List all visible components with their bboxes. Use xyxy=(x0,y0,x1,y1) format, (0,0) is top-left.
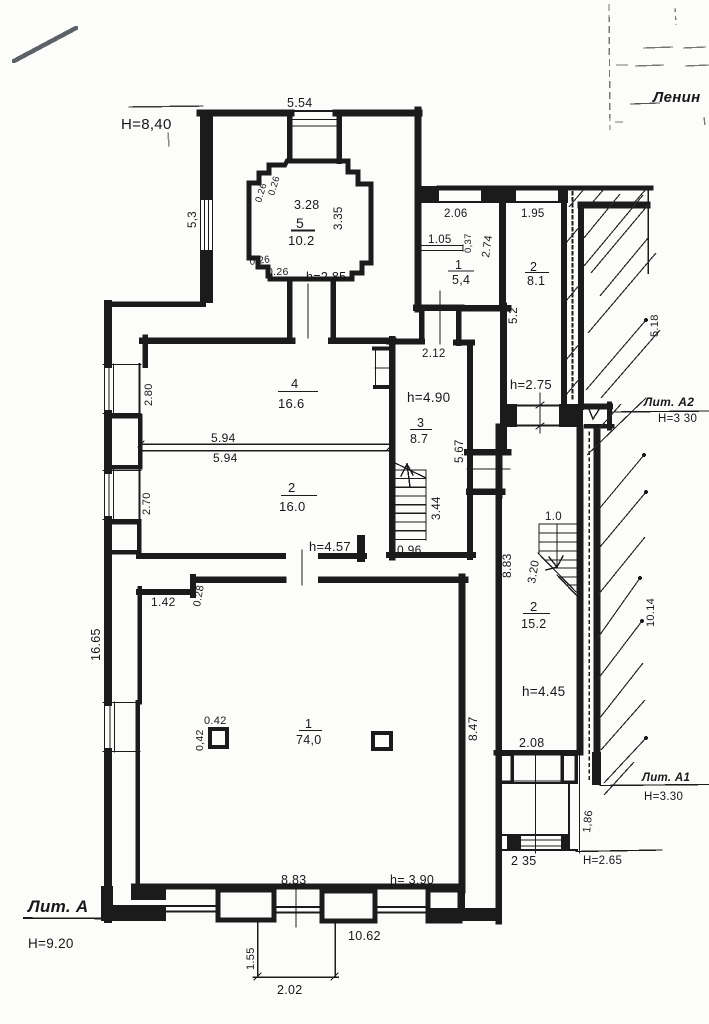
svg-text:74,0: 74,0 xyxy=(296,733,322,747)
svg-text:8.83: 8.83 xyxy=(281,873,307,887)
svg-text:3: 3 xyxy=(417,416,424,430)
svg-text:H=8,40: H=8,40 xyxy=(121,116,172,133)
svg-text:2.08: 2.08 xyxy=(519,736,545,750)
svg-text:5.94: 5.94 xyxy=(211,431,236,445)
svg-text:4: 4 xyxy=(291,376,299,391)
svg-text:h=2.85: h=2.85 xyxy=(306,270,346,284)
svg-text:0,42: 0,42 xyxy=(194,729,206,751)
svg-text:Лит. А2: Лит. А2 xyxy=(643,395,694,409)
svg-text:H=9.20: H=9.20 xyxy=(28,936,74,951)
svg-text:h=2.75: h=2.75 xyxy=(510,377,552,392)
svg-text:8.47: 8.47 xyxy=(466,716,480,741)
svg-text:8.83: 8.83 xyxy=(500,553,514,578)
svg-text:5,3: 5,3 xyxy=(187,211,199,228)
svg-text:1.05: 1.05 xyxy=(428,234,452,246)
svg-text:2: 2 xyxy=(530,599,538,614)
svg-text:5: 5 xyxy=(296,215,304,231)
svg-text:2.06: 2.06 xyxy=(444,208,468,220)
svg-text:8.7: 8.7 xyxy=(410,432,428,446)
svg-text:1.0: 1.0 xyxy=(545,511,562,523)
svg-text:16.6: 16.6 xyxy=(278,396,305,411)
svg-text:8.1: 8.1 xyxy=(527,274,545,288)
svg-text:5.18: 5.18 xyxy=(649,314,661,337)
svg-text:1: 1 xyxy=(305,717,312,731)
svg-text:1,86: 1,86 xyxy=(581,810,595,834)
svg-text:10.14: 10.14 xyxy=(645,598,657,627)
svg-text:2.12: 2.12 xyxy=(422,348,446,360)
svg-text:1.95: 1.95 xyxy=(521,208,545,220)
svg-text:3.35: 3.35 xyxy=(333,206,345,230)
svg-text:15.2: 15.2 xyxy=(521,617,547,631)
svg-text:H=2.65: H=2.65 xyxy=(583,855,622,867)
svg-text:1.42: 1.42 xyxy=(151,595,176,609)
svg-text:16.0: 16.0 xyxy=(279,499,306,514)
svg-text:5.2: 5.2 xyxy=(508,307,520,324)
svg-text:1: 1 xyxy=(455,258,462,272)
svg-text:h=4.45: h=4.45 xyxy=(522,684,565,699)
svg-text:5.54: 5.54 xyxy=(287,96,313,110)
svg-text:H=3.30: H=3.30 xyxy=(644,791,683,803)
svg-text:H=3 30: H=3 30 xyxy=(658,413,697,425)
svg-text:Ленин: Ленин xyxy=(652,89,700,106)
svg-text:10.62: 10.62 xyxy=(348,929,381,943)
svg-text:0.42: 0.42 xyxy=(204,715,227,727)
svg-text:h= 3.90: h= 3.90 xyxy=(390,873,434,887)
svg-text:2: 2 xyxy=(288,480,296,495)
svg-text:2.80: 2.80 xyxy=(143,383,155,406)
svg-text:1.55: 1.55 xyxy=(245,947,257,970)
svg-text:16.65: 16.65 xyxy=(89,628,103,661)
svg-text:h=4.57: h=4.57 xyxy=(309,539,351,554)
svg-text:Лит. А: Лит. А xyxy=(26,897,88,916)
svg-text:0,37: 0,37 xyxy=(463,233,474,253)
svg-text:3.28: 3.28 xyxy=(294,198,320,212)
svg-text:5,4: 5,4 xyxy=(452,273,470,287)
svg-text:2.02: 2.02 xyxy=(277,983,303,997)
svg-text:0.96: 0.96 xyxy=(397,543,422,557)
svg-text:2 35: 2 35 xyxy=(511,854,537,868)
svg-text:5.67: 5.67 xyxy=(454,439,466,463)
svg-text:Лит. А1: Лит. А1 xyxy=(641,772,690,784)
svg-text:10.2: 10.2 xyxy=(288,233,315,248)
svg-text:2.70: 2.70 xyxy=(141,492,153,515)
svg-text:5.94: 5.94 xyxy=(213,451,238,465)
svg-text:0.26: 0.26 xyxy=(267,266,289,278)
svg-text:3.44: 3.44 xyxy=(431,496,443,520)
svg-text:h=4.90: h=4.90 xyxy=(407,390,450,405)
